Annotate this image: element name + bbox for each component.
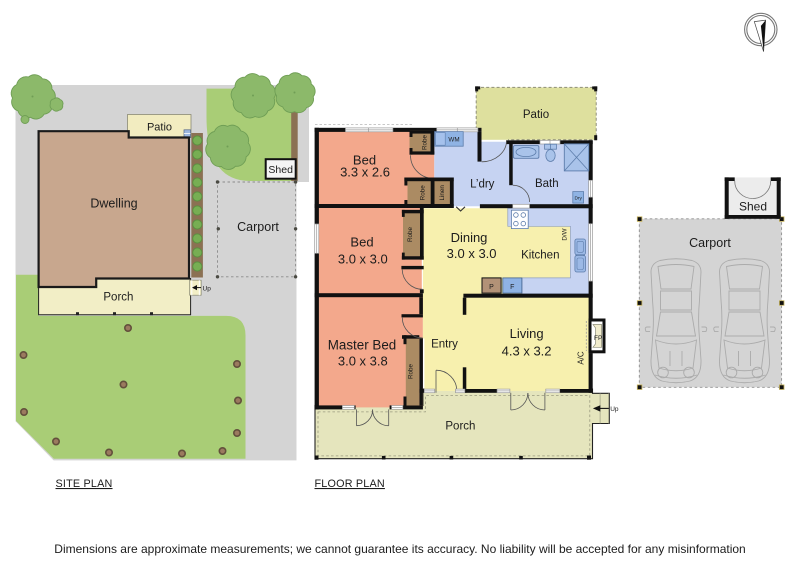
svg-text:Shed: Shed: [268, 164, 293, 176]
svg-text:Dwelling: Dwelling: [90, 196, 137, 210]
svg-text:Linen: Linen: [439, 185, 446, 201]
svg-text:F: F: [510, 284, 514, 291]
svg-text:Dry: Dry: [574, 196, 582, 202]
svg-text:FP: FP: [594, 335, 602, 342]
svg-text:Dimensions are approximate mea: Dimensions are approximate measurements;…: [54, 542, 745, 556]
svg-text:Porch: Porch: [103, 292, 133, 304]
svg-text:3.0 x 3.0: 3.0 x 3.0: [338, 251, 388, 266]
svg-text:Master Bed: Master Bed: [328, 337, 396, 352]
svg-text:Kitchen: Kitchen: [521, 250, 559, 262]
svg-text:WM: WM: [448, 137, 459, 144]
svg-text:FLOOR PLAN: FLOOR PLAN: [315, 478, 385, 490]
svg-text:D/W: D/W: [562, 228, 569, 240]
svg-text:Living: Living: [510, 326, 544, 341]
svg-text:Patio: Patio: [147, 121, 172, 133]
svg-text:Bed: Bed: [350, 234, 373, 249]
svg-text:Up: Up: [203, 285, 212, 292]
svg-text:Robe: Robe: [419, 185, 426, 201]
svg-text:A/C: A/C: [577, 351, 586, 365]
svg-text:Carport: Carport: [237, 220, 279, 234]
svg-text:3.0 x 3.0: 3.0 x 3.0: [447, 246, 497, 261]
svg-text:Patio: Patio: [523, 109, 549, 121]
svg-text:Up: Up: [610, 406, 619, 413]
svg-text:3.0 x 3.8: 3.0 x 3.8: [338, 353, 388, 368]
svg-text:Carport: Carport: [689, 236, 731, 250]
svg-text:SITE PLAN: SITE PLAN: [56, 478, 113, 490]
svg-text:Shed: Shed: [739, 200, 767, 214]
svg-text:Robe: Robe: [422, 134, 429, 150]
svg-text:P: P: [489, 284, 494, 291]
svg-text:Dining: Dining: [451, 230, 488, 245]
svg-text:L’dry: L’dry: [470, 179, 495, 191]
svg-text:Robe: Robe: [407, 226, 414, 242]
svg-text:Robe: Robe: [408, 363, 415, 379]
svg-text:Porch: Porch: [445, 421, 475, 433]
svg-text:Bath: Bath: [535, 178, 559, 190]
svg-text:3.3 x 2.6: 3.3 x 2.6: [340, 165, 390, 180]
svg-text:4.3 x 3.2: 4.3 x 3.2: [502, 343, 552, 358]
svg-text:Entry: Entry: [431, 339, 458, 351]
